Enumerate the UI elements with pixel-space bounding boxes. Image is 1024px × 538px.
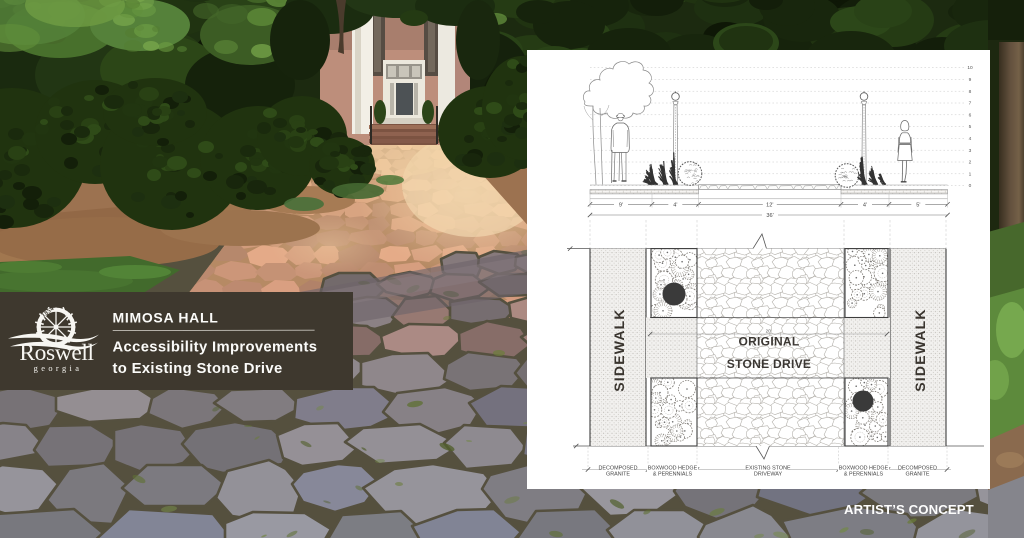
svg-text:9: 9 xyxy=(969,77,972,83)
svg-text:12': 12' xyxy=(766,202,773,208)
svg-text:20': 20' xyxy=(766,329,772,334)
svg-text:4': 4' xyxy=(863,202,867,208)
svg-text:10: 10 xyxy=(967,65,973,71)
svg-text:to Existing Stone Drive: to Existing Stone Drive xyxy=(113,361,283,377)
svg-text:GRANITE: GRANITE xyxy=(606,471,630,477)
svg-text:4: 4 xyxy=(969,136,972,142)
svg-text:STONE DRIVE: STONE DRIVE xyxy=(727,357,811,371)
svg-text:SIDEWALK: SIDEWALK xyxy=(611,308,627,392)
svg-text:9': 9' xyxy=(619,202,623,208)
svg-text:GRANITE: GRANITE xyxy=(906,471,930,477)
svg-text:georgia: georgia xyxy=(34,364,83,373)
svg-text:2: 2 xyxy=(969,160,972,166)
svg-text:Accessibility Improvements: Accessibility Improvements xyxy=(113,339,318,355)
svg-text:6: 6 xyxy=(969,112,972,118)
svg-text:1854: 1854 xyxy=(41,306,56,319)
svg-text:& PERENNIALS: & PERENNIALS xyxy=(653,471,693,477)
svg-text:8: 8 xyxy=(969,89,972,95)
svg-text:1: 1 xyxy=(969,171,972,177)
svg-text:4': 4' xyxy=(673,202,677,208)
svg-text:DRIVEWAY: DRIVEWAY xyxy=(754,471,783,477)
svg-text:Roswell: Roswell xyxy=(19,340,94,366)
svg-text:MIMOSA HALL: MIMOSA HALL xyxy=(113,310,219,326)
svg-text:5: 5 xyxy=(969,124,972,130)
svg-text:SIDEWALK: SIDEWALK xyxy=(912,308,928,392)
svg-text:7: 7 xyxy=(969,101,972,107)
svg-text:5': 5' xyxy=(916,202,920,208)
svg-text:ORIGINAL: ORIGINAL xyxy=(738,335,799,349)
svg-text:0: 0 xyxy=(969,183,972,189)
svg-text:36': 36' xyxy=(766,213,773,219)
svg-text:3: 3 xyxy=(969,148,972,154)
svg-text:& PERENNIALS: & PERENNIALS xyxy=(844,471,884,477)
